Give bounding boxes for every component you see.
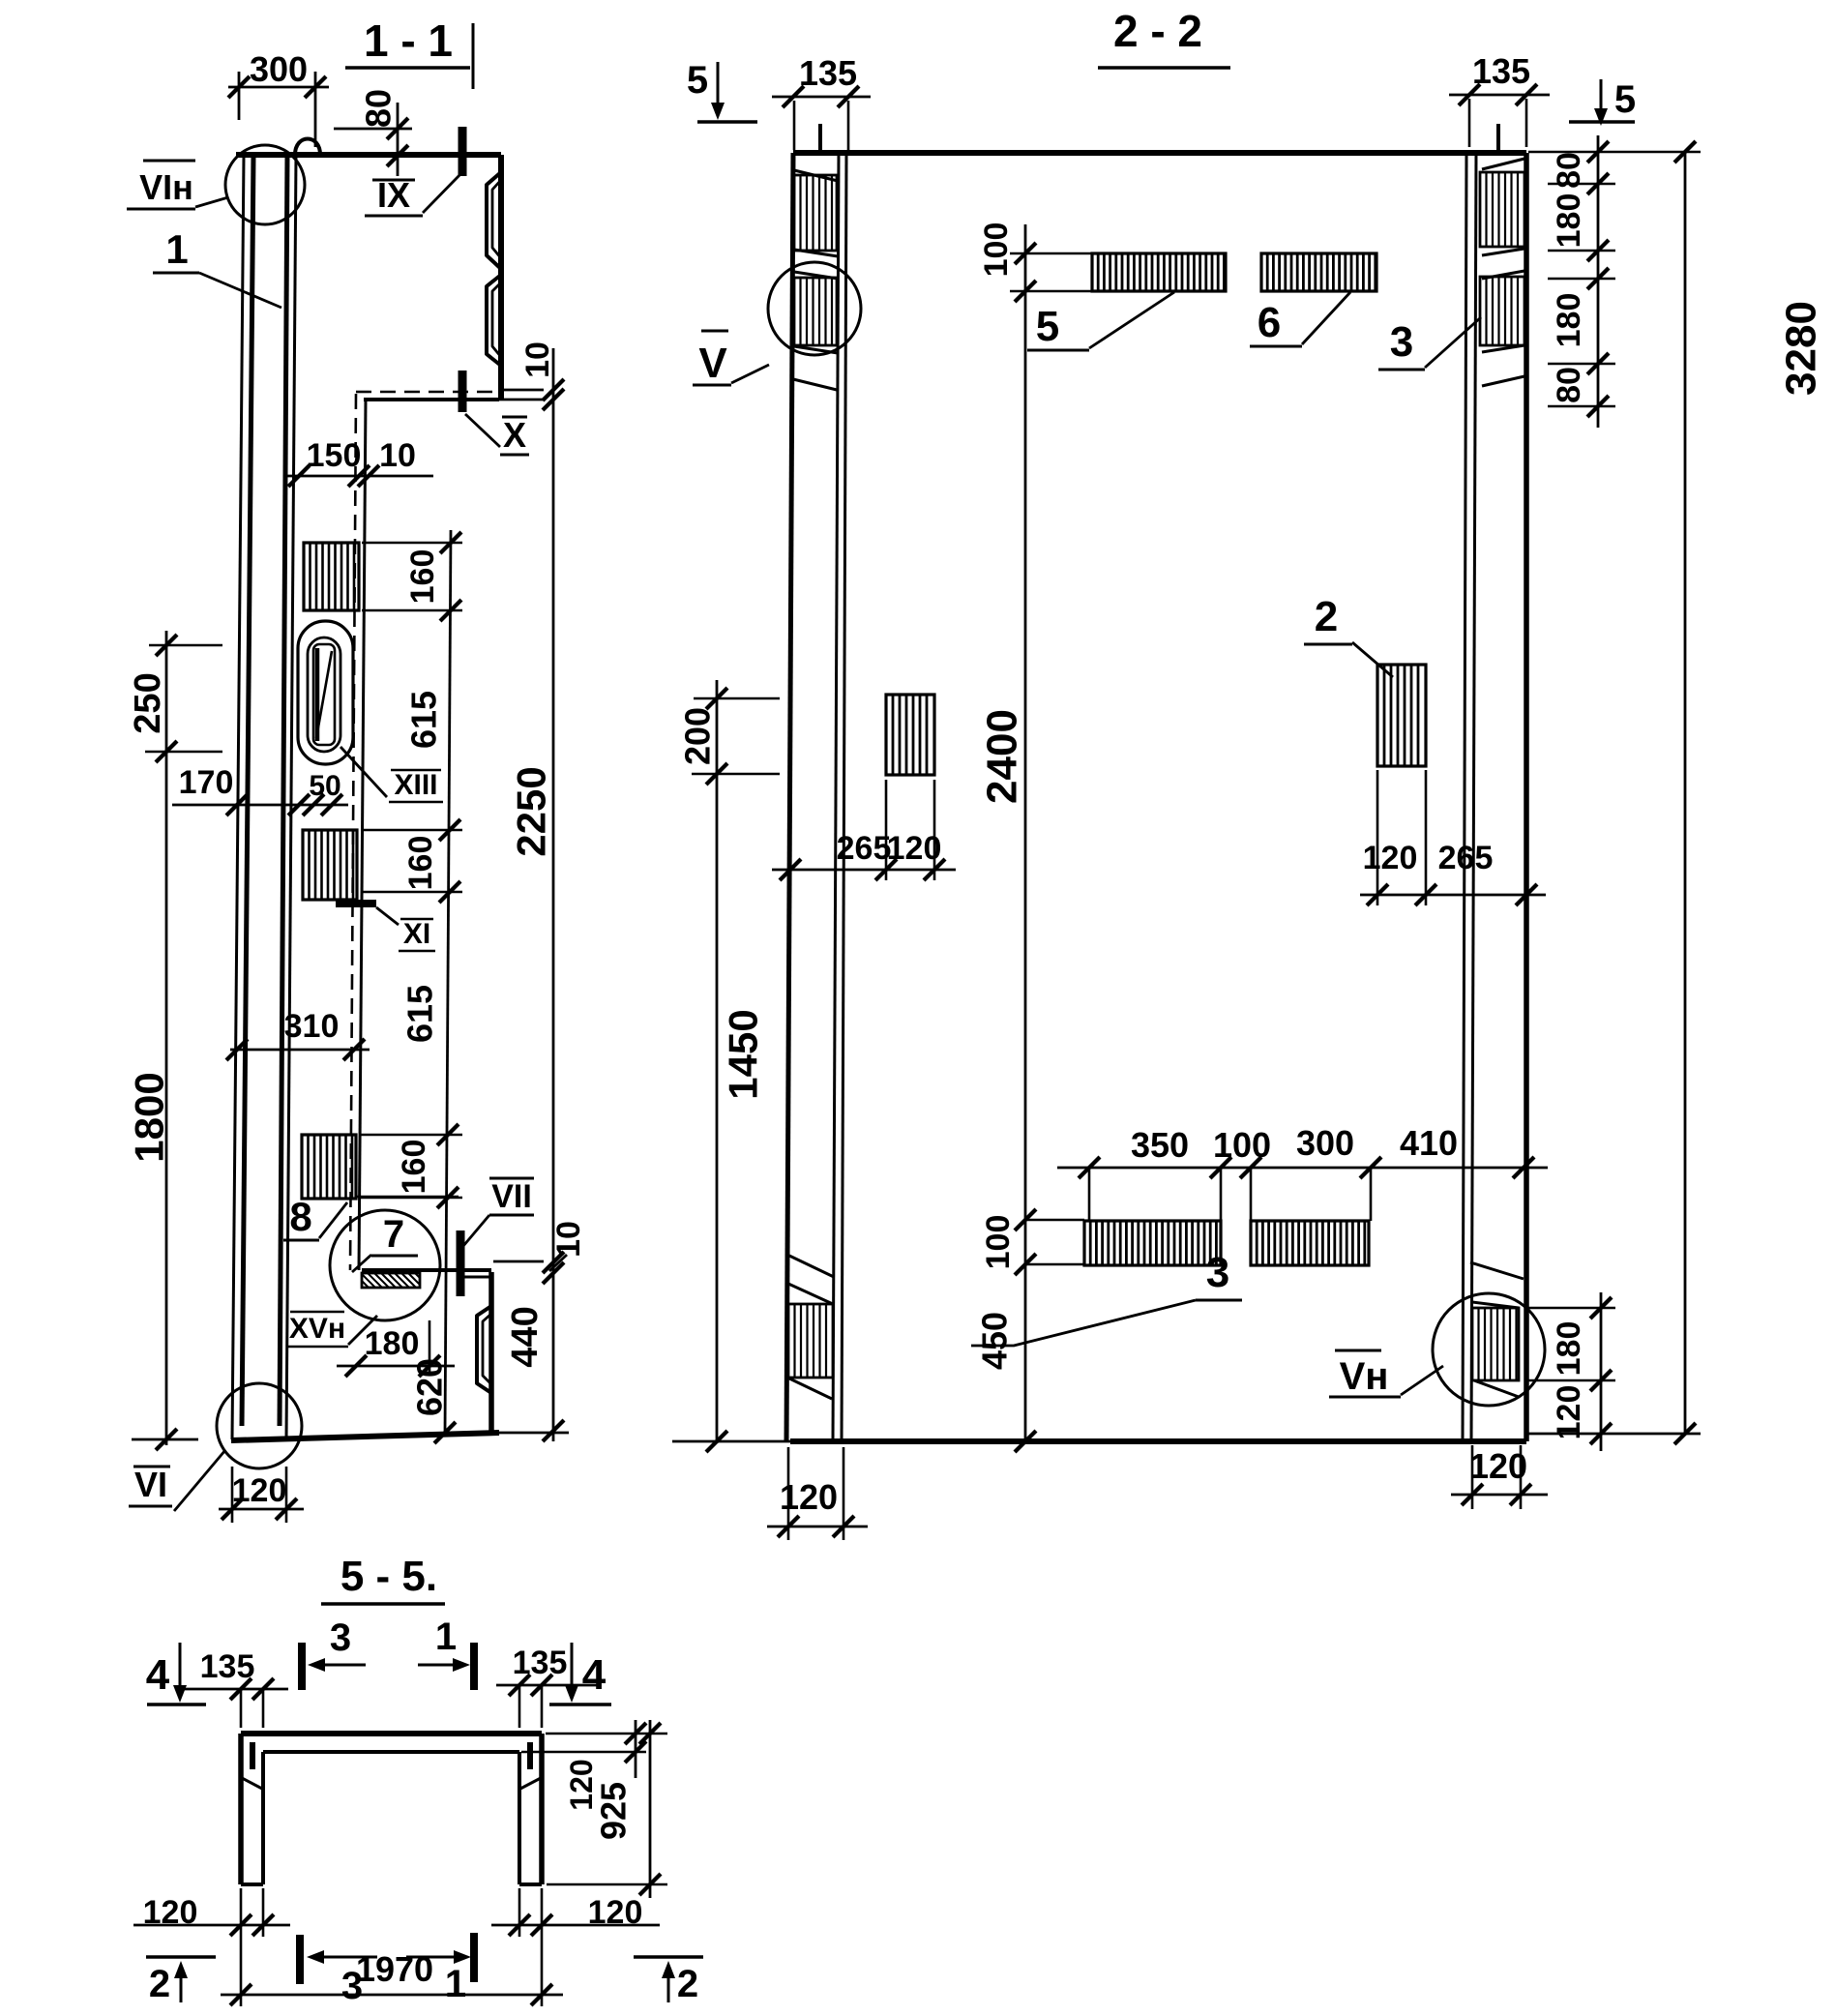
svg-text:250: 250 [128,672,168,733]
svg-text:80: 80 [1551,367,1587,403]
svg-text:200: 200 [678,707,718,765]
svg-text:2: 2 [149,1963,170,2005]
svg-text:XI: XI [403,918,430,950]
svg-text:135: 135 [513,1645,568,1681]
svg-text:50: 50 [309,770,340,802]
svg-text:2: 2 [677,1963,698,2005]
svg-text:100: 100 [980,1215,1017,1270]
svg-text:350: 350 [1131,1125,1189,1165]
svg-text:7: 7 [383,1213,404,1256]
svg-text:180: 180 [1551,293,1587,348]
svg-text:4: 4 [146,1651,170,1699]
svg-text:135: 135 [799,53,857,93]
svg-text:180: 180 [1551,193,1587,249]
svg-text:4: 4 [582,1651,607,1699]
svg-text:265: 265 [837,830,892,867]
svg-text:5 - 5.: 5 - 5. [340,1553,437,1600]
svg-text:3: 3 [341,1965,363,2007]
svg-text:3: 3 [1390,318,1413,366]
svg-text:10: 10 [519,341,556,378]
svg-text:450: 450 [975,1312,1015,1370]
svg-text:100: 100 [1213,1125,1271,1165]
svg-text:VII: VII [491,1178,532,1215]
svg-text:6: 6 [1258,299,1281,346]
svg-text:120: 120 [143,1894,198,1931]
svg-text:1: 1 [435,1616,457,1658]
svg-text:160: 160 [396,1140,432,1195]
svg-text:V: V [698,340,727,387]
svg-text:135: 135 [1472,51,1530,91]
svg-text:5: 5 [1614,78,1636,121]
svg-text:8: 8 [289,1194,311,1239]
svg-text:440: 440 [505,1306,546,1367]
svg-text:300: 300 [250,49,308,89]
svg-text:265: 265 [1438,840,1494,876]
svg-text:1: 1 [165,226,188,272]
svg-text:2250: 2250 [509,766,554,856]
svg-text:410: 410 [1400,1123,1458,1163]
svg-text:310: 310 [284,1008,340,1045]
svg-text:X: X [503,415,526,455]
svg-text:120: 120 [232,1472,287,1509]
svg-text:VIн: VIн [139,167,193,207]
svg-text:170: 170 [179,764,234,801]
svg-text:160: 160 [404,549,441,605]
svg-text:160: 160 [402,836,439,891]
svg-text:5: 5 [1036,303,1059,350]
svg-text:10: 10 [379,437,416,474]
svg-text:3280: 3280 [1778,301,1825,396]
svg-text:300: 300 [1296,1123,1354,1163]
svg-text:80: 80 [359,89,399,128]
svg-text:Vн: Vн [1340,1355,1389,1398]
svg-text:2 - 2: 2 - 2 [1113,6,1202,56]
svg-text:1 - 1: 1 - 1 [364,15,453,66]
svg-text:5: 5 [687,59,708,102]
svg-text:2400: 2400 [979,709,1026,804]
svg-text:3: 3 [1206,1249,1229,1296]
svg-text:925: 925 [594,1782,634,1840]
svg-text:1450: 1450 [721,1009,766,1099]
svg-text:180: 180 [365,1325,420,1362]
svg-text:100: 100 [978,222,1015,278]
svg-text:10: 10 [550,1221,587,1258]
svg-text:1800: 1800 [127,1072,172,1162]
svg-text:150: 150 [307,437,362,474]
svg-text:615: 615 [404,691,444,749]
svg-text:180: 180 [1551,1321,1587,1377]
svg-text:XVн: XVн [289,1313,345,1345]
svg-text:120: 120 [588,1894,643,1931]
svg-text:120: 120 [1469,1446,1527,1486]
svg-text:2: 2 [1315,593,1338,640]
svg-text:120: 120 [1551,1385,1587,1440]
svg-text:1970: 1970 [356,1949,433,1989]
svg-text:135: 135 [200,1648,255,1685]
svg-text:120: 120 [780,1477,838,1517]
svg-text:3: 3 [330,1616,351,1659]
svg-text:80: 80 [1551,152,1587,189]
svg-text:XIII: XIII [394,769,437,801]
svg-text:1: 1 [445,1963,466,2005]
svg-text:VI: VI [134,1465,167,1504]
svg-text:615: 615 [400,985,440,1043]
svg-text:120: 120 [1363,840,1418,876]
